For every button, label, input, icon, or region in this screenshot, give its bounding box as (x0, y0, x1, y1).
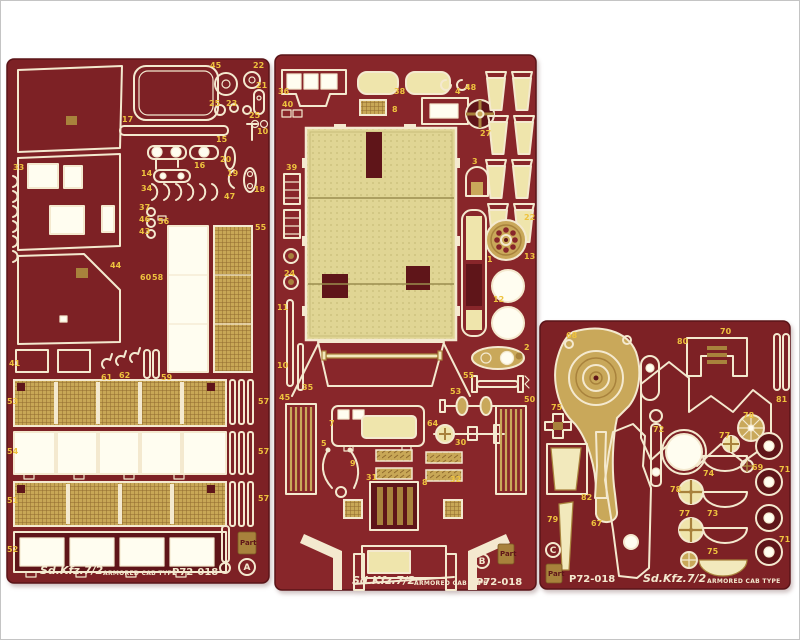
fret-a-door-plain (168, 226, 208, 372)
part-number: 67 (591, 519, 602, 528)
part-number: 24 (284, 269, 296, 278)
fret-b-light-pod (472, 347, 524, 369)
fret-letter: A (244, 563, 251, 573)
part-number: 33 (13, 163, 24, 172)
part-number: 21 (256, 81, 268, 90)
part-number: 30 (455, 438, 467, 447)
fret-c-fork-part (595, 432, 607, 498)
part-number: 2 (524, 343, 530, 352)
part-number: 25 (209, 99, 221, 108)
part-number: 75 (707, 547, 719, 556)
part-number: 62 (119, 371, 130, 380)
part-number: 60 (140, 273, 152, 282)
part-number: 78 (743, 411, 755, 420)
fret-b-ribbed-block (370, 482, 418, 530)
part-number: 1 (487, 255, 493, 264)
part-number: 31 (366, 473, 378, 482)
part-number: 45 (279, 393, 291, 402)
part-number: 44 (110, 261, 122, 270)
fret-b-disc-2 (492, 307, 524, 339)
part-number: 16 (194, 161, 206, 170)
part-number: 47 (224, 192, 235, 201)
part-number: 45 (210, 61, 222, 70)
part-number: 58 (152, 273, 164, 282)
part-number: 81 (776, 395, 788, 404)
part-number: 82 (581, 493, 592, 502)
part-number: 17 (122, 115, 133, 124)
fret-a: Part A Sd.Kfz.7/2 ARMORED CAB TYPE P72-0… (6, 58, 270, 584)
part-number: 23 (226, 99, 237, 108)
fret-c-subtitle: ARMORED CAB TYPE (707, 578, 781, 585)
part-number: 50 (524, 395, 536, 404)
part-number: 53 (450, 387, 461, 396)
product-photo: Part A Sd.Kfz.7/2 ARMORED CAB TYPE P72-0… (0, 0, 800, 640)
fret-a-brand-logo: Part (238, 532, 257, 554)
part-number: 8 (392, 105, 398, 114)
part-number: 54 (7, 447, 19, 456)
fret-b-mesh-chip (360, 100, 386, 115)
part-number: 41 (9, 359, 21, 368)
part-number: 74 (703, 469, 715, 478)
part-number: 61 (101, 373, 113, 382)
part-number: 70 (720, 327, 732, 336)
part-number: 57 (258, 397, 269, 406)
brand-text: Part (500, 550, 517, 558)
part-number: 43 (139, 227, 150, 236)
part-number: 78 (670, 485, 682, 494)
fret-b-brand-logo: Part (498, 544, 517, 564)
brand-text: Part (240, 539, 257, 547)
part-number: 22 (524, 213, 535, 222)
fret-letter: C (550, 546, 557, 556)
fret-b-code: P72-018 (476, 577, 522, 588)
part-number: 52 (7, 545, 18, 554)
part-number: 34 (141, 184, 153, 193)
part-number: 68 (566, 331, 578, 340)
part-number: 55 (463, 371, 475, 380)
fret-letter: B (479, 557, 486, 567)
part-number: 8 (422, 478, 428, 487)
part-number: 25 (249, 111, 261, 120)
part-number: 7 (329, 419, 335, 428)
part-number: 3 (472, 157, 478, 166)
part-number: 39 (286, 163, 298, 172)
part-number: 59 (161, 373, 173, 382)
part-number: 77 (719, 431, 730, 440)
part-number: 19 (227, 169, 239, 178)
part-number: 15 (216, 135, 228, 144)
fret-a-plate-row-2 (14, 432, 226, 479)
part-number: 79 (547, 515, 559, 524)
part-number: 77 (679, 509, 690, 518)
fret-c-brand-logo: Part (546, 564, 565, 583)
part-number: 46 (139, 215, 151, 224)
part-number: 37 (139, 203, 150, 212)
brand-text: Part (548, 570, 565, 578)
part-number: 57 (258, 494, 269, 503)
fret-b-title: Sd.Kfz.7/2 (352, 574, 416, 587)
part-number: 55 (255, 223, 267, 232)
fret-c-code: P72-018 (569, 574, 615, 585)
part-number: 69 (752, 463, 764, 472)
fret-b-mesh-square-1 (344, 500, 362, 518)
part-number: 20 (220, 155, 232, 164)
fret-a-grille-row-3 (14, 482, 226, 526)
part-number: 80 (677, 337, 689, 346)
part-number: 71 (779, 535, 791, 544)
part-number: 36 (278, 87, 290, 96)
part-number: 75 (551, 403, 563, 412)
fret-c: C Part P72-018 Sd.Kfz.7/2 ARMORED CAB TY… (539, 320, 791, 590)
fret-a-code: P72-018 (172, 567, 218, 578)
part-number: 10 (277, 361, 289, 370)
part-number: 12 (493, 295, 504, 304)
part-number: 4 (455, 87, 461, 96)
fret-a-subtitle: ARMORED CAB TYPE (103, 570, 177, 577)
part-number: 73 (707, 509, 718, 518)
part-number: 22 (253, 61, 264, 70)
part-number: 18 (254, 185, 266, 194)
part-number: 27 (480, 129, 491, 138)
fret-a-grille-row-1 (14, 380, 226, 426)
part-number: 51 (7, 496, 19, 505)
part-number: 71 (779, 465, 791, 474)
part-number: 35 (302, 383, 314, 392)
fret-b-wheel (486, 220, 526, 260)
part-number: 64 (427, 419, 439, 428)
part-number: 5 (321, 439, 327, 448)
part-number: 11 (277, 303, 289, 312)
fret-a-title: Sd.Kfz.7/2 (40, 564, 104, 577)
part-number: 48 (465, 83, 477, 92)
part-number: 13 (524, 252, 535, 261)
fret-b-mesh-square-2 (444, 500, 462, 518)
part-number: 72 (653, 425, 664, 434)
part-number: 10 (257, 127, 269, 136)
part-number: 38 (394, 87, 406, 96)
part-number: 56 (158, 217, 170, 226)
part-number: 40 (282, 100, 294, 109)
part-number: 9 (350, 459, 356, 468)
part-number: 14 (141, 169, 153, 178)
fret-c-title: Sd.Kfz.7/2 (643, 572, 707, 585)
part-number: 32 (450, 475, 461, 484)
fret-c-large-ring (662, 430, 706, 474)
fret-b: B Part Sd.Kfz.7/2 ARMORED CAB TYPE P72-0… (274, 54, 537, 591)
part-number: 53 (7, 397, 18, 406)
part-number: 57 (258, 447, 269, 456)
fret-a-door-mesh (214, 226, 252, 372)
fret-b-floor-plate (302, 124, 460, 340)
